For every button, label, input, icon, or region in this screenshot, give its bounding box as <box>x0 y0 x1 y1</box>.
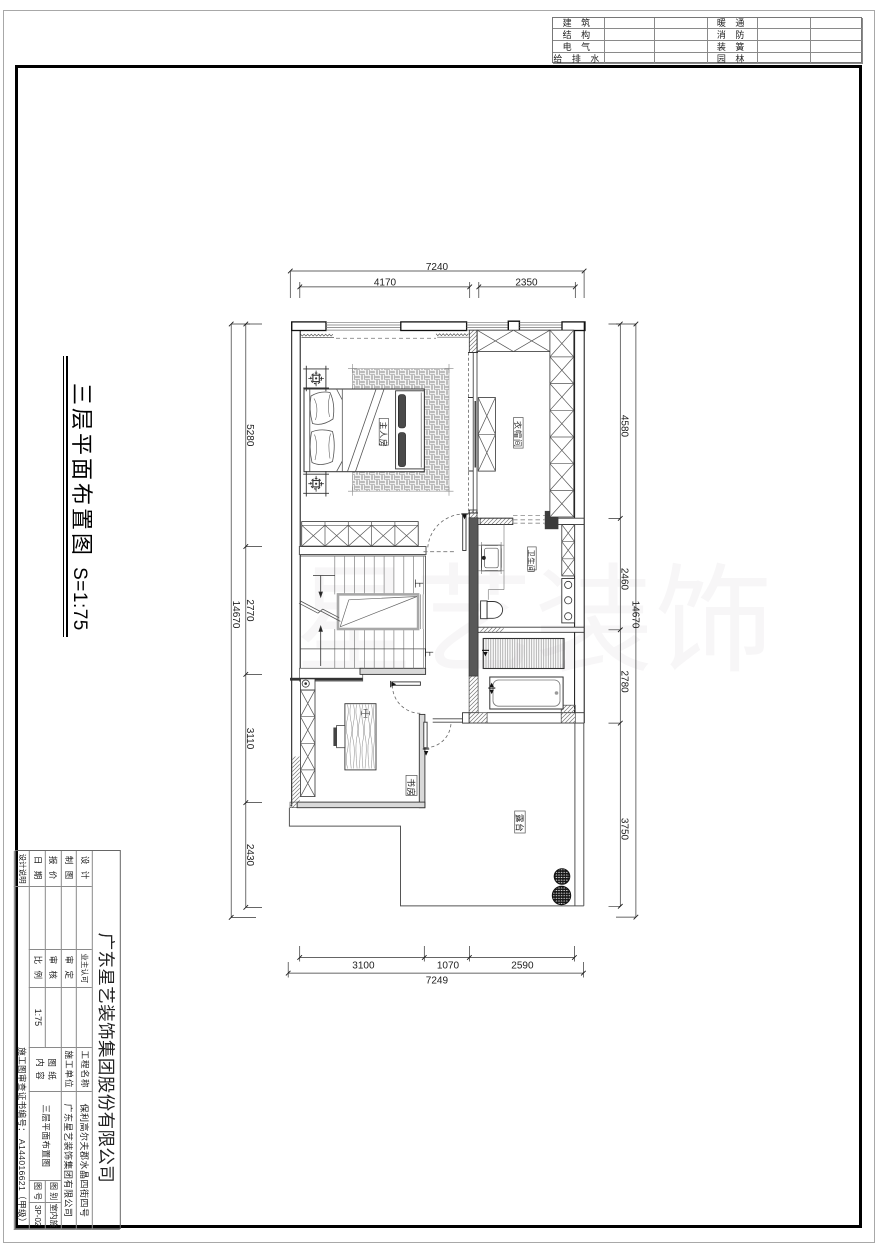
svg-text:书房: 书房 <box>406 778 416 796</box>
svg-text:2590: 2590 <box>511 960 534 971</box>
svg-text:主人房: 主人房 <box>378 422 388 448</box>
svg-text:2350: 2350 <box>515 277 538 288</box>
svg-text:3750: 3750 <box>619 818 630 841</box>
svg-text:14670: 14670 <box>629 601 640 629</box>
svg-text:14670: 14670 <box>230 601 241 629</box>
svg-text:4170: 4170 <box>374 277 397 288</box>
svg-text:3100: 3100 <box>352 960 375 971</box>
svg-text:上: 上 <box>414 579 424 588</box>
svg-text:3110: 3110 <box>244 728 255 750</box>
svg-text:2430: 2430 <box>244 844 255 867</box>
svg-text:1070: 1070 <box>437 960 460 971</box>
svg-text:2770: 2770 <box>244 599 255 622</box>
svg-text:4580: 4580 <box>619 415 630 438</box>
svg-text:衣帽间: 衣帽间 <box>513 421 523 448</box>
svg-text:5280: 5280 <box>244 424 255 447</box>
svg-text:2780: 2780 <box>619 670 630 693</box>
svg-text:7249: 7249 <box>426 976 449 987</box>
svg-text:上: 上 <box>424 648 434 657</box>
svg-text:露台: 露台 <box>514 814 524 832</box>
svg-text:7240: 7240 <box>426 262 449 273</box>
svg-text:卫生间: 卫生间 <box>527 550 537 573</box>
svg-text:2460: 2460 <box>619 568 630 591</box>
